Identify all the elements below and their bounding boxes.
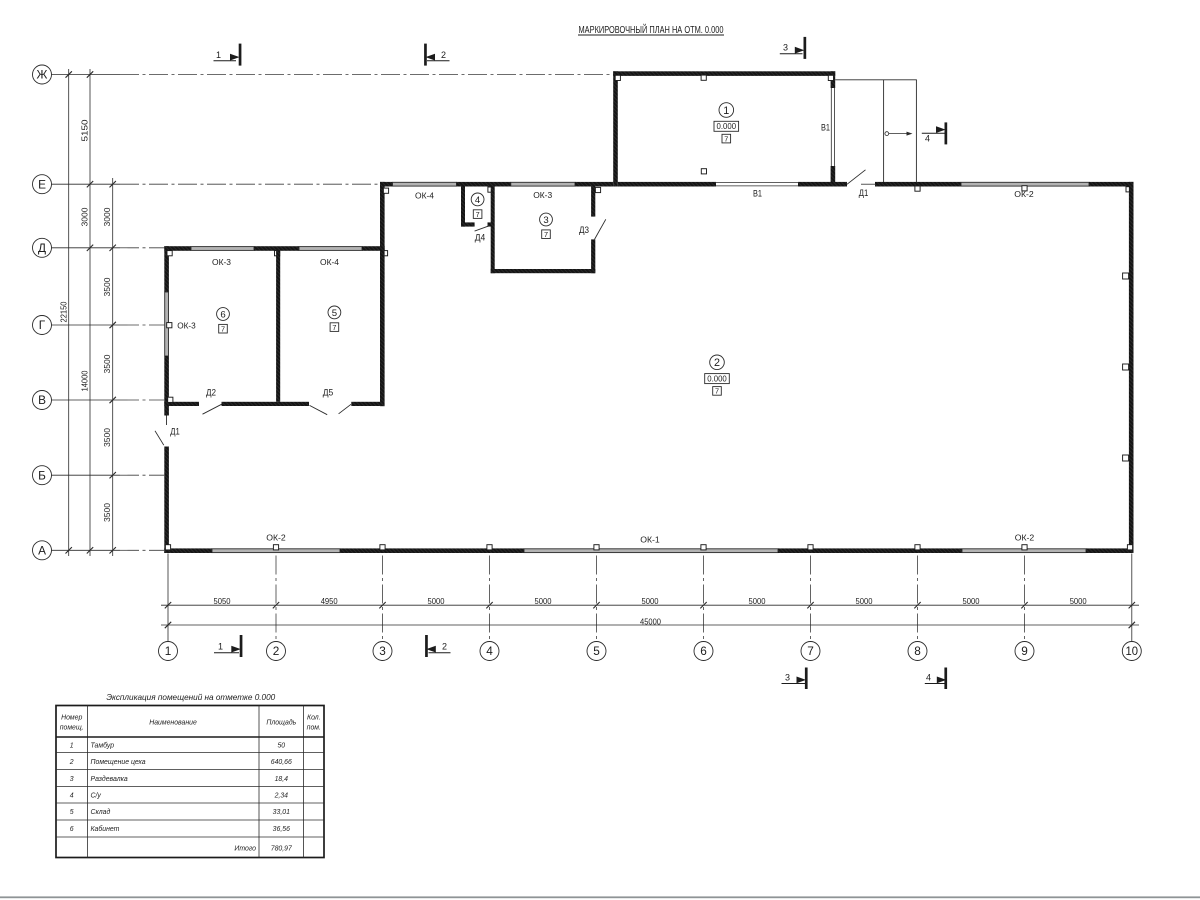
svg-text:МАРКИРОВОЧНЫЙ ПЛАН НА ОТМ. 0.0: МАРКИРОВОЧНЫЙ ПЛАН НА ОТМ. 0.000 — [579, 24, 724, 36]
svg-text:Наименование: Наименование — [149, 720, 197, 727]
svg-text:5000: 5000 — [749, 597, 766, 606]
svg-text:Тамбур: Тамбур — [91, 742, 115, 750]
svg-text:780,97: 780,97 — [271, 846, 293, 853]
svg-text:5000: 5000 — [856, 597, 873, 606]
svg-text:Площадь: Площадь — [266, 719, 296, 727]
svg-text:18,4: 18,4 — [275, 776, 289, 783]
svg-text:5000: 5000 — [963, 597, 980, 606]
svg-text:2: 2 — [69, 759, 74, 766]
svg-text:ОК-3: ОК-3 — [177, 320, 196, 330]
svg-text:6: 6 — [70, 826, 74, 833]
svg-text:0.000: 0.000 — [707, 375, 727, 384]
svg-text:1: 1 — [218, 642, 223, 652]
svg-text:А: А — [38, 543, 46, 557]
svg-text:3: 3 — [785, 673, 790, 683]
svg-text:Д1: Д1 — [170, 426, 180, 436]
svg-text:ОК-1: ОК-1 — [640, 535, 660, 545]
svg-text:5000: 5000 — [535, 597, 552, 606]
svg-text:В: В — [38, 393, 46, 407]
svg-text:ОК-2: ОК-2 — [1015, 533, 1035, 543]
svg-text:Д: Д — [38, 241, 46, 255]
svg-text:Помещение цеха: Помещение цеха — [91, 759, 146, 766]
svg-text:5000: 5000 — [1070, 597, 1087, 606]
svg-text:5: 5 — [332, 308, 337, 319]
svg-text:1: 1 — [723, 105, 729, 117]
svg-text:6: 6 — [220, 310, 225, 321]
svg-text:5150: 5150 — [80, 119, 89, 142]
svg-text:ОК-2: ОК-2 — [266, 533, 286, 543]
svg-text:7: 7 — [476, 210, 480, 219]
svg-text:ОК-4: ОК-4 — [320, 257, 339, 267]
svg-text:7: 7 — [715, 387, 719, 396]
svg-text:пом.: пом. — [307, 725, 321, 732]
svg-text:Е: Е — [38, 177, 46, 191]
svg-text:В1: В1 — [821, 122, 830, 132]
svg-text:36,56: 36,56 — [273, 826, 290, 833]
svg-text:8: 8 — [914, 644, 921, 658]
svg-text:2: 2 — [441, 50, 446, 60]
svg-text:5000: 5000 — [642, 597, 659, 606]
svg-text:2: 2 — [273, 644, 280, 658]
svg-text:2: 2 — [714, 357, 720, 369]
svg-text:Ж: Ж — [37, 68, 48, 82]
svg-text:Кабинет: Кабинет — [91, 825, 120, 833]
svg-text:Склад: Склад — [91, 808, 111, 816]
svg-text:3000: 3000 — [103, 207, 112, 226]
svg-text:3500: 3500 — [103, 428, 112, 447]
svg-text:Экспликация помещений на отмет: Экспликация помещений на отметке 0.000 — [106, 693, 275, 702]
svg-text:ОК-4: ОК-4 — [415, 190, 434, 200]
svg-text:45000: 45000 — [640, 617, 661, 626]
svg-text:Д3: Д3 — [579, 225, 589, 235]
svg-text:2: 2 — [442, 642, 447, 652]
svg-text:3500: 3500 — [103, 277, 112, 296]
svg-text:Д1: Д1 — [859, 188, 869, 198]
svg-text:В1: В1 — [753, 189, 762, 199]
svg-text:Г: Г — [39, 318, 46, 332]
svg-text:Б: Б — [38, 468, 46, 482]
svg-text:4950: 4950 — [321, 597, 338, 606]
svg-text:33,01: 33,01 — [273, 809, 290, 816]
svg-text:3: 3 — [379, 644, 386, 658]
svg-text:5000: 5000 — [428, 597, 445, 606]
svg-text:14000: 14000 — [80, 370, 89, 391]
svg-text:Д5: Д5 — [323, 388, 334, 398]
svg-text:3: 3 — [783, 43, 788, 53]
svg-text:Д2: Д2 — [206, 388, 216, 398]
svg-text:3: 3 — [70, 776, 74, 783]
svg-text:1: 1 — [70, 743, 74, 750]
svg-text:Раздевалка: Раздевалка — [91, 775, 128, 783]
svg-text:Кол.: Кол. — [307, 715, 321, 722]
svg-text:3000: 3000 — [80, 207, 89, 226]
svg-text:Д4: Д4 — [475, 233, 486, 243]
svg-text:2,34: 2,34 — [274, 793, 289, 800]
svg-text:1: 1 — [216, 50, 221, 60]
svg-text:ОК-3: ОК-3 — [212, 257, 231, 267]
svg-text:7: 7 — [724, 134, 728, 143]
svg-text:7: 7 — [807, 644, 814, 658]
svg-text:7: 7 — [332, 323, 336, 332]
svg-text:Номер: Номер — [61, 715, 82, 722]
svg-text:5: 5 — [593, 644, 600, 658]
svg-text:7: 7 — [221, 324, 225, 333]
svg-text:3: 3 — [543, 215, 548, 226]
svg-text:4: 4 — [925, 134, 930, 144]
svg-text:6: 6 — [700, 644, 707, 658]
svg-text:7: 7 — [544, 230, 548, 239]
svg-text:22150: 22150 — [59, 301, 68, 322]
svg-text:1: 1 — [165, 644, 172, 658]
svg-text:помещ.: помещ. — [60, 725, 84, 732]
svg-text:3500: 3500 — [103, 354, 112, 373]
svg-text:5: 5 — [70, 809, 74, 816]
svg-text:Итого: Итого — [234, 846, 256, 853]
svg-text:С/у: С/у — [91, 793, 102, 800]
svg-text:50: 50 — [277, 743, 285, 750]
svg-text:ОК-3: ОК-3 — [533, 190, 552, 200]
svg-text:4: 4 — [486, 644, 493, 658]
svg-text:5050: 5050 — [214, 597, 231, 606]
svg-text:0.000: 0.000 — [717, 122, 737, 131]
svg-text:4: 4 — [70, 793, 74, 800]
svg-text:4: 4 — [926, 673, 931, 683]
svg-text:4: 4 — [475, 195, 481, 206]
svg-text:9: 9 — [1021, 644, 1028, 658]
svg-text:640,66: 640,66 — [271, 759, 292, 766]
svg-text:3500: 3500 — [103, 503, 112, 522]
svg-text:10: 10 — [1126, 644, 1139, 658]
